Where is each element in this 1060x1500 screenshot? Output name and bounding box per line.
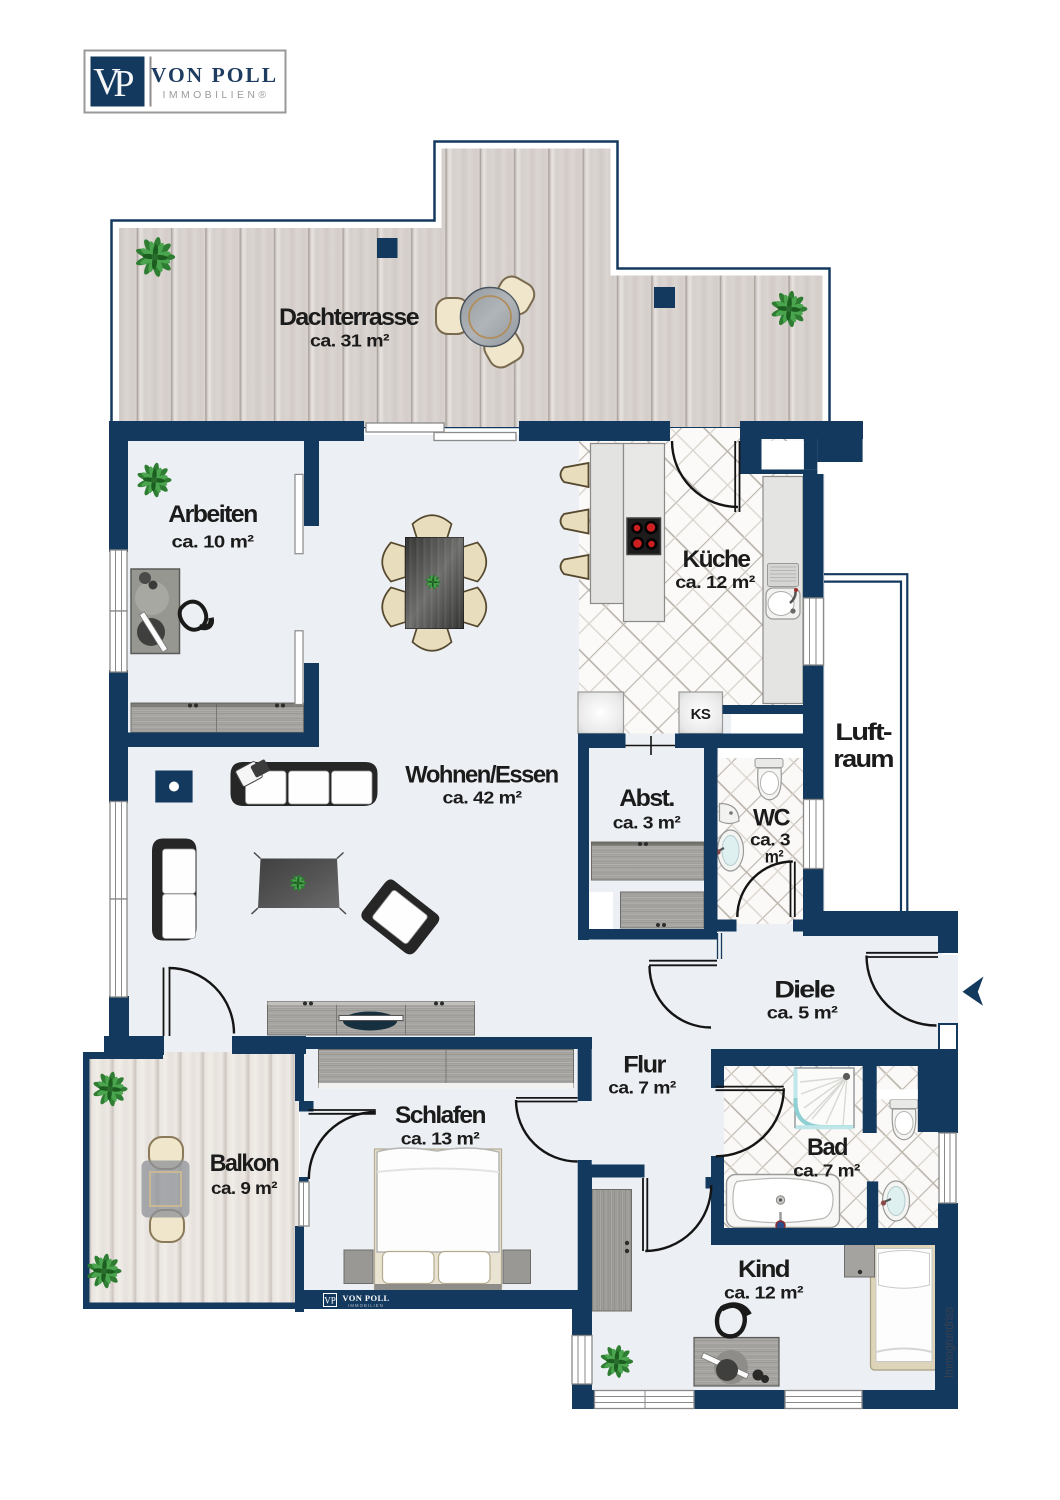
svg-text:WC: WC	[753, 805, 790, 832]
svg-text:ca. 5 m²: ca. 5 m²	[767, 1003, 838, 1023]
svg-text:Luft-: Luft-	[835, 719, 892, 746]
svg-text:KS: KS	[691, 706, 711, 723]
svg-text:VP: VP	[324, 1296, 336, 1306]
svg-text:Dachterrasse: Dachterrasse	[279, 304, 419, 331]
svg-text:ca. 31 m²: ca. 31 m²	[310, 331, 390, 351]
svg-text:Kind: Kind	[738, 1256, 790, 1283]
svg-text:IMMOBILIEN®: IMMOBILIEN®	[163, 89, 270, 101]
svg-text:Arbeiten: Arbeiten	[168, 501, 257, 528]
svg-text:IMMOBILIEN: IMMOBILIEN	[348, 1303, 384, 1308]
svg-text:raum: raum	[833, 746, 893, 773]
svg-text:m²: m²	[765, 847, 784, 867]
svg-text:ca. 7 m²: ca. 7 m²	[793, 1161, 860, 1181]
svg-text:Balkon: Balkon	[210, 1150, 279, 1177]
svg-text:VON POLL: VON POLL	[151, 63, 278, 87]
svg-text:ca. 12 m²: ca. 12 m²	[675, 572, 755, 592]
svg-text:Immogrundriss: Immogrundriss	[942, 1307, 956, 1378]
svg-text:Abst.: Abst.	[619, 785, 674, 812]
svg-text:ca. 13 m²: ca. 13 m²	[401, 1129, 480, 1149]
svg-text:ca. 10 m²: ca. 10 m²	[172, 532, 255, 552]
svg-text:Schlafen: Schlafen	[395, 1102, 486, 1129]
svg-text:Wohnen/Essen: Wohnen/Essen	[405, 762, 558, 789]
svg-text:VON POLL: VON POLL	[342, 1293, 389, 1303]
svg-text:Küche: Küche	[683, 546, 751, 573]
svg-text:ca. 9 m²: ca. 9 m²	[211, 1178, 278, 1198]
svg-text:P: P	[113, 63, 134, 105]
svg-text:Diele: Diele	[774, 977, 835, 1004]
svg-text:Flur: Flur	[623, 1052, 666, 1079]
svg-text:ca. 3 m²: ca. 3 m²	[613, 813, 681, 833]
svg-text:ca. 7 m²: ca. 7 m²	[608, 1078, 676, 1098]
svg-text:ca. 12 m²: ca. 12 m²	[724, 1283, 804, 1303]
svg-text:ca. 42 m²: ca. 42 m²	[443, 788, 523, 808]
svg-text:Bad: Bad	[807, 1134, 848, 1161]
